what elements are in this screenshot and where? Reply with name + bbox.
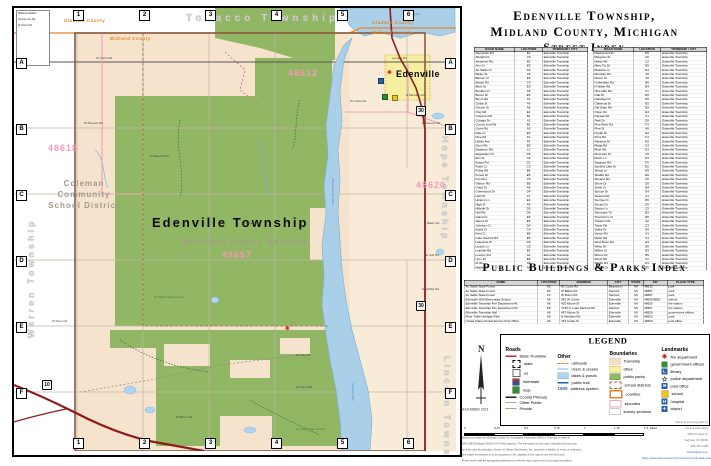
legend-boundary-township-icon (610, 358, 621, 365)
legend-road-private-label: Private (520, 406, 532, 411)
pb-row: Edenville Township Fire Department #2E54… (464, 307, 704, 311)
post-office-icon (378, 78, 384, 84)
map-label-n-meridian-rd: N Meridian Rd (406, 94, 425, 97)
legend-rivers-creeks-icon (558, 369, 569, 370)
grid-row-label: A (445, 58, 456, 69)
legend-public-trail-icon (558, 382, 569, 384)
legend-landmark-library-label: library (671, 369, 682, 374)
legend-road-private-icon (506, 408, 517, 409)
legend-landmark-post-icon: ✉ (662, 383, 668, 389)
map-label-lincoln-township: Lincoln Township (442, 356, 452, 457)
map-label-30: 30 (416, 106, 426, 116)
credit-line: 2052 Durham Dr (642, 433, 708, 436)
legend-lakes-ponds-label: lakes & ponds (572, 374, 597, 379)
map-label-w-burns-rd: W Burns Rd (176, 416, 192, 419)
grid-column-label: 6 (403, 10, 414, 21)
address-number: 1500 (558, 386, 568, 391)
legend-landmark-gov-icon (662, 361, 668, 367)
map-label-w-clay-rd: W Clay Rd (296, 354, 310, 357)
address-label: address system (571, 386, 599, 391)
map-label-10: 10 (42, 380, 52, 390)
grid-row-label: B (445, 124, 456, 135)
legend-boundary-cities-icon (610, 366, 621, 373)
fire-station-icon: ✷ (386, 70, 393, 76)
grid-row-label: B (16, 124, 27, 135)
corner-box-line: Midland Gladwin (18, 12, 33, 15)
legend-shield-loop-label: loop (523, 388, 531, 393)
name: United States Postal Service Post Office (464, 320, 537, 324)
legend-state-trunkline: State Trunkline (506, 354, 555, 359)
legend-shield-state-icon (513, 360, 521, 368)
legend-railroads-icon (558, 363, 569, 364)
legend-boundary-survey-icon (610, 409, 621, 416)
legend-landmark-hospital: Hhospital (662, 399, 711, 405)
legend-boundary-zip-icon (610, 400, 622, 408)
legend-landmark-fire-label: fire department (671, 355, 698, 360)
title-line-1: Edenville Township, (458, 8, 711, 24)
legend-landmark-police-icon: ☆ (662, 376, 668, 382)
public-buildings-heading: Public Buildings & Parks Index (458, 260, 711, 275)
scale-tick-label: 0.25 (494, 427, 500, 430)
legend-boundary-counties: counties (610, 390, 659, 399)
credits-block: Mapping and Copyright byConsult Data Wrk… (576, 421, 708, 463)
legend-shield-loop: loop (506, 387, 555, 394)
legend-landmark-fire-icon: ✷ (662, 354, 668, 360)
legend-shield-loop-icon (513, 387, 520, 394)
grid-column-label: 5 (337, 438, 348, 449)
legend-shield-state: state (506, 360, 555, 368)
legend-shield-int-label: interstate (523, 380, 539, 385)
map-label-w-olson-rd: W Olson Rd (296, 386, 312, 389)
legend-railroads-label: railroads (572, 361, 587, 366)
legend-road-county: County Primary (506, 395, 555, 400)
grid-row-label: E (16, 322, 27, 333)
zip: 48620 (643, 320, 667, 324)
legend-public-trail-label: public trail (572, 380, 590, 385)
map-label-48612: 48612 (288, 68, 318, 78)
legend-landmark-library: Llibrary (662, 369, 711, 375)
map-label-coleman-community-school-district: Coleman Community School District (42, 178, 126, 211)
grid-row-label: F (16, 388, 27, 399)
legend-boundary-school-icon (610, 381, 622, 389)
legend-landmarks-title: Landmarks (662, 347, 711, 353)
map-edenville-township: Midland GladwinCounty Line RdW Vance Rd … (12, 6, 462, 457)
school-icon (392, 95, 398, 101)
grid-row-label: A (16, 58, 27, 69)
map-label-w-baker-rd: W Baker Rd (242, 222, 258, 225)
map-label-w-river-rd: W River Rd (52, 320, 67, 323)
map-label-e-shearer-rd: E Shearer Rd (422, 122, 440, 125)
legend-roads-title: Roads (506, 347, 555, 353)
grid-column-label: 3 (205, 10, 216, 21)
legend-landmark-school: school (662, 390, 711, 397)
map-label-w-shearer-rd: W Shearer Rd (84, 122, 103, 125)
map-label-tittabawassee-river: Tittabawassee River (331, 178, 334, 205)
city: Edenville (608, 320, 629, 324)
legend-boundary-survey-label: survey sections (624, 410, 652, 415)
grid-column-label: 4 (271, 10, 282, 21)
map-label-gladwin-county: Gladwin County (64, 18, 105, 23)
corner-box-line: W Vance Rd (18, 24, 33, 27)
legend-boundary-cities: cities (610, 366, 659, 373)
legend-landmark-hospital-icon: H (662, 399, 668, 405)
scale-tick-label: 0.75 (554, 427, 560, 430)
place-type: post office (667, 320, 703, 324)
map-label-edenville: Edenville (396, 69, 440, 79)
legend-landmark-post-label: post office (671, 384, 689, 389)
grid-row-label: D (16, 256, 27, 267)
legend-boundary-zip-label: zipcodes (625, 401, 641, 406)
map-label-warren-township: Warren Township (26, 218, 36, 338)
legend-road-other: Other Public (506, 401, 555, 406)
legend-road-private: Private (506, 406, 555, 411)
legend-boundary-counties-icon (610, 390, 623, 399)
map-label-au-sable-state-forest: Au Sable State Forest (296, 428, 325, 431)
legend-boundary-township: Township (610, 358, 659, 365)
legend-rivers-creeks-label: rivers & creeks (572, 367, 598, 372)
disclaimer-line: and makes no warranty as to the accuracy… (462, 454, 537, 457)
legend-landmark-airport-label: airport (671, 407, 682, 412)
state: MI (629, 320, 643, 324)
map-label-48620: 48620 (416, 180, 446, 190)
legend-shield-int: interstate (506, 378, 555, 385)
map-label-meridian-public-schools: Meridian Public Schools (182, 237, 309, 246)
legend-boundary-township-label: Township (624, 359, 641, 364)
address: 467 Cedar St (560, 320, 608, 324)
grid-column-label: 4 (271, 438, 282, 449)
map-label-w-stewart-rd: W Stewart Rd (150, 155, 169, 158)
legend-landmark-police: ☆police department (662, 376, 711, 382)
legend-boundary-cities-label: cities (624, 367, 633, 372)
legend-boundary-survey: survey sections (610, 409, 659, 416)
fire-station-icon: ✷ (284, 326, 291, 332)
map-label-48657: 48657 (222, 250, 252, 260)
scale-tick-label: 0.5 (524, 427, 528, 430)
legend-public-trail: public trail (558, 380, 607, 385)
legend-boundaries-title: Boundaries (610, 351, 659, 357)
map-label-au-sable-state-forest: Au Sable State Forest (154, 296, 183, 299)
legend-other-title: Other (558, 354, 607, 360)
compass-n-label: N (478, 344, 485, 354)
legend-road-county-icon (506, 396, 517, 398)
credit-line: Saginaw, MI 48609 (642, 439, 708, 442)
legend-landmark-school-label: school (672, 392, 684, 397)
government-office-icon (382, 94, 388, 100)
legend-boundary-counties-label: counties (626, 392, 641, 397)
legend-boundary-school-label: school districts (625, 383, 651, 388)
legend-landmark-gov-label: government offices (671, 362, 705, 367)
legend-boundary-parks-label: public parks (624, 375, 645, 380)
legend-landmark-school-icon (662, 390, 669, 397)
title-line-2: Midland County, Michigan (458, 24, 711, 40)
legend-landmark-fire: ✷fire department (662, 354, 711, 360)
legend-landmark-airport-icon: ✈ (662, 406, 668, 412)
legend-landmark-library-icon: L (662, 369, 668, 375)
legend-rivers-creeks: rivers & creeks (558, 367, 607, 372)
grid-column-label: 2 (139, 10, 150, 21)
legend-road-other-icon (506, 403, 517, 404)
map-label-e-hull-rd: E Hull Rd (426, 254, 439, 257)
public-buildings-table-wrap: NAMELOCATIONADDRESSCITYSTATEZIPPLACE TYP… (464, 280, 704, 324)
scale-tick-label: 0 (464, 427, 466, 430)
legend-boundary-zip: zipcodes (610, 400, 659, 408)
legend-railroads: railroads (558, 361, 607, 366)
legend-shield-us-icon (513, 369, 521, 377)
legend-landmark-post: ✉post office (662, 383, 711, 389)
grid-row-label: F (445, 388, 456, 399)
map-label-edenville-township: Edenville Township (152, 215, 308, 230)
disclaimer-line: NAD 1983 Michigan GeoRef (US Feet) proje… (462, 443, 537, 446)
street-index-left: ROAD NAMELOCATIONTOWNSHIP / CITYAlamando… (474, 47, 588, 271)
map-label-w-curtis-rd: W Curtis Rd (96, 57, 112, 60)
legend-lakes-ponds-icon (558, 373, 569, 380)
grid-row-label: C (445, 190, 456, 201)
legend-shield-us-label: us (524, 371, 528, 376)
map-label-midland-county: Midland County (110, 36, 151, 41)
legend-landmark-gov: government offices (662, 361, 711, 367)
legend-boundary-parks: public parks (610, 374, 659, 381)
legend-state-trunkline-label: State Trunkline (520, 354, 547, 359)
legend-boundary-school: school districts (610, 381, 659, 389)
map-label-30: 30 (416, 301, 426, 311)
credit-line: Mapping and Copyright by (642, 421, 708, 424)
grid-row-label: E (445, 322, 456, 333)
index-panel: Edenville Township, Midland County, Mich… (458, 0, 711, 460)
grid-row-label: C (16, 190, 27, 201)
pb-row: United States Postal Service Post Office… (464, 320, 704, 324)
map-label-midland-county: Midland County (372, 30, 413, 35)
legend-title: LEGEND (504, 336, 710, 346)
grid-column-label: 2 (139, 438, 150, 449)
grid-column-label: 6 (403, 438, 414, 449)
legend-state-trunkline-icon (506, 356, 517, 358)
grid-row-label: D (445, 256, 456, 267)
legend-landmark-police-label: police department (671, 377, 703, 382)
legend-box: LEGEND RoadsState Trunklinestateusinters… (500, 334, 710, 426)
map-label-lovejoy-rd: Lovejoy Rd (392, 57, 407, 60)
grid-column-label: 5 (337, 10, 348, 21)
legend-shield-us: us (506, 369, 555, 377)
legend-lakes-ponds: lakes & ponds (558, 373, 607, 380)
legend-road-other-label: Other Public (520, 401, 542, 406)
disclaimer-line: as of the date of publication. Known as … (462, 449, 537, 452)
legend-landmark-airport: ✈airport (662, 406, 711, 412)
disclaimer-line: Background data from Michigan Center For… (462, 437, 537, 440)
grid-column-label: 1 (73, 10, 84, 21)
legend-boundary-parks-icon (610, 374, 621, 381)
grid-column-label: 1 (73, 438, 84, 449)
map-label-e-shaffer-rd: E Shaffer Rd (422, 288, 439, 291)
compass-north-arrow: N (468, 342, 494, 413)
street-index-right: ROAD NAMELOCATIONTOWNSHIP / CITYMaplewoo… (593, 47, 707, 271)
map-label-sanford-lake: Sanford Lake (351, 383, 354, 401)
legend-road-county-label: County Primary (520, 395, 548, 400)
legend-shield-int-icon (513, 378, 520, 385)
map-label-w-curtis-rd: W Curtis Rd (350, 100, 366, 103)
map-label-48618: 48618 (48, 143, 78, 153)
grid-column-label: 3 (205, 438, 216, 449)
legend-landmark-hospital-label: hospital (671, 399, 685, 404)
legend-address-system: 1500address system (558, 386, 607, 391)
location: A6 (538, 320, 560, 324)
credit-link[interactable]: cdwrks@aol.com (642, 451, 708, 454)
credit-line: 989-781-1308 (642, 445, 708, 448)
disclaimer-line: Please check with the appropriate author… (462, 460, 537, 463)
credit-line: Consult Data Wrks (642, 427, 708, 430)
map-date: DECEMBER 2021 (460, 408, 489, 412)
corner-box-line: County Line Rd (18, 18, 33, 21)
map-label-e-baker-rd: E Baker Rd (424, 222, 439, 225)
legend-shield-state-label: state (524, 362, 533, 367)
